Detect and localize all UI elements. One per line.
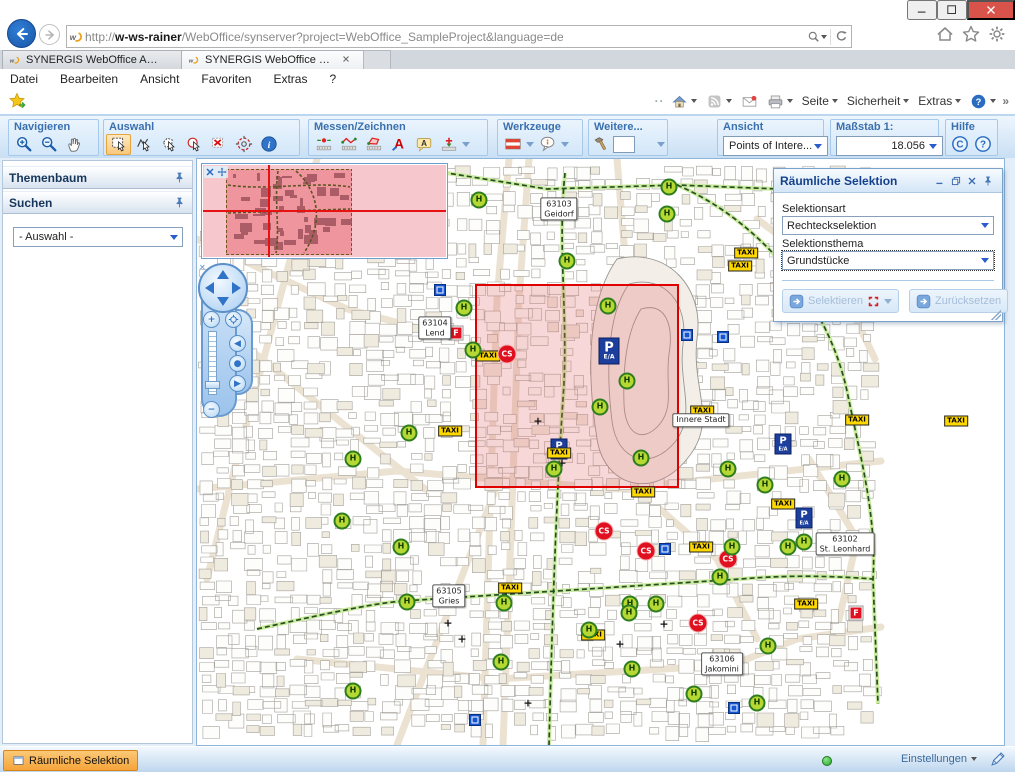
hydrant-marker: H: [661, 179, 678, 196]
dropdown-value: Points of Intere...: [729, 140, 814, 152]
add-favorite-icon[interactable]: [8, 91, 28, 111]
panel-close-button[interactable]: [964, 173, 980, 189]
refresh-icon[interactable]: [834, 29, 849, 44]
nav-current-extent-button[interactable]: ●: [229, 355, 246, 372]
measure-line-icon: [340, 135, 358, 153]
select-line-icon: [135, 135, 153, 153]
info-square-marker: [469, 714, 481, 726]
menu-extras[interactable]: Extras: [273, 72, 307, 86]
measure-area-button[interactable]: [361, 134, 386, 155]
selection-rectangle-icon: [867, 295, 880, 308]
parking-marker: PE/A: [775, 434, 792, 455]
group-title: Werkzeuge: [503, 121, 561, 133]
church-cross-marker: +: [457, 633, 466, 646]
hydrant-marker: H: [749, 695, 766, 712]
taxi-stand-marker: TAXI: [794, 599, 818, 610]
toolbar-group-navigieren: Navigieren: [8, 119, 99, 156]
favorites-star-icon[interactable]: [961, 24, 981, 44]
carsharing-marker: CS: [637, 542, 656, 561]
selektieren-label: Selektieren: [808, 295, 863, 307]
hydrant-marker: H: [780, 539, 797, 556]
minimize-icon: [915, 3, 929, 17]
select-circle-icon: [185, 135, 203, 153]
menu-datei[interactable]: Datei: [10, 72, 38, 86]
browser-tab-1[interactable]: wSYNERGIS WebOffice Administ...: [2, 50, 194, 69]
carsharing-marker: CS: [498, 345, 517, 364]
svg-text:i: i: [267, 140, 270, 151]
panel-minimize-button[interactable]: [932, 173, 948, 189]
help-circle-icon: ?: [974, 135, 992, 153]
overview-thumbnail: [226, 169, 352, 255]
district-label: 63105Gries: [432, 584, 465, 607]
taxi-stand-marker: TAXI: [845, 415, 869, 426]
hydrant-marker: H: [592, 399, 609, 416]
selektieren-button[interactable]: Selektieren: [782, 289, 899, 313]
window-titlebar[interactable]: [0, 0, 1015, 22]
pan-west-icon[interactable]: [205, 282, 214, 294]
nav-zoom-in-button[interactable]: +: [203, 311, 220, 328]
drag-handle[interactable]: ··: [655, 94, 665, 108]
hydrant-marker: H: [581, 622, 598, 639]
help-circle-button[interactable]: ?: [972, 134, 996, 155]
draw-symbol-icon: [440, 135, 458, 153]
select-clear-icon: [210, 135, 228, 153]
browser-tab-2[interactable]: wSYNERGIS WebOffice WebO...: [181, 50, 375, 69]
austria-flag-button[interactable]: [500, 134, 525, 155]
cmd-seite[interactable]: Seite: [799, 93, 841, 109]
weboffice-toolbar: NavigierenAuswahliMessen/ZeichnenAAWerkz…: [0, 114, 1015, 158]
chevron-down-icon[interactable]: [461, 142, 471, 147]
hydrant-marker: H: [724, 539, 741, 556]
back-button[interactable]: [7, 19, 36, 48]
hydrant-marker: H: [559, 253, 576, 270]
menu-favoriten[interactable]: Favoriten: [201, 72, 251, 86]
hydrant-marker: H: [834, 471, 851, 488]
svg-text:A: A: [421, 139, 427, 148]
group-title: Messen/Zeichnen: [314, 121, 406, 133]
hydrant-marker: H: [621, 605, 638, 622]
taxi-stand-marker: TAXI: [728, 261, 752, 272]
cmd-sicherheit[interactable]: Sicherheit: [844, 93, 912, 109]
settings-button[interactable]: Einstellungen: [895, 752, 983, 766]
menu-bearbeiten[interactable]: Bearbeiten: [60, 72, 118, 86]
taxi-stand-marker: TAXI: [631, 487, 655, 498]
tab-label: SYNERGIS WebOffice Administ...: [26, 54, 158, 66]
group-title: Ansicht: [723, 121, 763, 133]
draw-label-icon: A: [415, 135, 433, 153]
toolbar-group-messenzeichnen: Messen/ZeichnenAA: [308, 119, 488, 156]
pan-north-icon[interactable]: [217, 270, 229, 279]
toolbar-group-hilfe: HilfeC?: [945, 119, 998, 156]
overview-move-icon[interactable]: [217, 167, 227, 177]
sidebar-panel-suchen[interactable]: Suchen: [3, 191, 192, 214]
weboffice-favicon: w: [69, 29, 85, 45]
zoom-in-icon: [15, 135, 33, 153]
carsharing-marker: CS: [689, 614, 708, 633]
spatial-selection-panel: Räumliche Selektion Selektionsart Rechte…: [773, 168, 1003, 322]
hammer-icon: [592, 135, 610, 153]
district-label: 63104Lend: [418, 316, 451, 339]
window-minimize-button[interactable]: [907, 0, 937, 20]
info-square-marker: [659, 543, 671, 555]
toolbar-group-mastab: Maßstab 1:18.056: [830, 119, 939, 156]
overview-close-icon[interactable]: [205, 167, 215, 177]
chevron-down-icon: [990, 99, 996, 103]
draw-text-button[interactable]: A: [386, 134, 411, 155]
browser-window: w http://w-ws-rainer/WebOffice/synserver…: [0, 0, 1015, 772]
gear-icon[interactable]: [987, 24, 1007, 44]
hydrant-marker: H: [345, 683, 362, 700]
taxi-stand-marker: TAXI: [498, 583, 522, 594]
fire-marker: F: [450, 327, 463, 340]
taxi-stand-marker: TAXI: [944, 416, 968, 427]
select-buffer-button[interactable]: [231, 134, 256, 155]
map-navigation-widget: ✕ + ◀ ● ▶ −: [199, 263, 257, 425]
cmd-feeds[interactable]: [703, 92, 735, 111]
select-polygon-button[interactable]: [156, 134, 181, 155]
sidebar-panel-themenbaum[interactable]: Themenbaum: [3, 166, 192, 189]
info-square-marker: [681, 329, 693, 341]
hydrant-marker: H: [345, 451, 362, 468]
cmd-print[interactable]: [764, 92, 796, 111]
hydrant-marker: H: [546, 461, 563, 478]
panel-title: Räumliche Selektion: [780, 174, 932, 188]
group-title: Weitere...: [594, 121, 643, 133]
select-rectangle-icon: [110, 135, 128, 153]
sidebar-panel-label: Suchen: [9, 196, 173, 210]
pan-south-icon[interactable]: [217, 297, 229, 306]
status-bar: Räumliche Selektion Einstellungen: [0, 746, 1015, 772]
cmd-extras[interactable]: Extras: [915, 93, 964, 109]
church-cross-marker: +: [659, 618, 668, 631]
cmd-label: Sicherheit: [847, 94, 900, 108]
settings-label: Einstellungen: [901, 753, 967, 765]
chevron-down-icon: [814, 144, 822, 149]
arrow-right-icon: [789, 294, 804, 309]
toolbar-group-werkzeuge: Werkzeuge: [497, 119, 583, 156]
active-tool-tab[interactable]: Räumliche Selektion: [3, 750, 138, 771]
url-field[interactable]: w http://w-ws-rainer/WebOffice/synserver…: [66, 25, 852, 48]
hydrant-marker: H: [760, 638, 777, 655]
church-cross-marker: +: [523, 697, 532, 710]
measure-line-button[interactable]: [336, 134, 361, 155]
selektionsthema-dropdown[interactable]: Grundstücke: [782, 251, 994, 270]
zuruecksetzen-label: Zurücksetzen: [935, 295, 1001, 307]
fire-marker: F: [850, 607, 863, 620]
sidebar: - Auswahl - ThemenbaumSuchen: [2, 160, 193, 744]
overflow-chevron[interactable]: »: [1002, 94, 1009, 108]
chevron-down-icon: [971, 757, 977, 761]
chevron-down-icon: [955, 99, 961, 103]
menu-help[interactable]: ?: [329, 72, 336, 86]
weboffice-logo-icon: w: [9, 54, 22, 67]
selektionsart-value: Rechteckselektion: [787, 220, 981, 232]
copyright-button[interactable]: C: [948, 134, 972, 155]
hydrant-marker: H: [465, 342, 482, 359]
copyright-icon: C: [951, 135, 969, 153]
pin-icon: [173, 171, 186, 184]
group-title: Maßstab 1:: [836, 121, 893, 133]
hydrant-marker: H: [393, 539, 410, 556]
group-title: Auswahl: [109, 121, 154, 133]
weboffice-logo-icon: w: [188, 54, 201, 67]
group-title: Hilfe: [951, 121, 975, 133]
window-maximize-button[interactable]: [937, 0, 967, 20]
selektionsart-dropdown[interactable]: Rechteckselektion: [782, 216, 994, 235]
draw-text-icon: A: [390, 135, 408, 153]
divider: [782, 280, 994, 281]
dropdown-value: 18.056: [842, 140, 929, 152]
view-dropdown[interactable]: Points of Intere...: [723, 136, 828, 156]
maximize-icon: [945, 3, 959, 17]
selektionsthema-value: Grundstücke: [787, 255, 981, 267]
back-arrow-icon: [13, 25, 31, 43]
svg-text:?: ?: [980, 140, 986, 151]
toolbar-group-auswahl: Auswahli: [103, 119, 300, 156]
svg-text:?: ?: [976, 96, 982, 106]
hydrant-marker: H: [334, 513, 351, 530]
church-cross-marker: +: [533, 415, 542, 428]
chevron-down-icon: [981, 223, 989, 228]
edit-pencil-icon[interactable]: [989, 750, 1007, 768]
status-indicator-dot: [822, 756, 832, 766]
svg-text:A: A: [394, 137, 404, 152]
chevron-down-icon: [981, 258, 989, 263]
hydrant-marker: H: [399, 594, 416, 611]
district-label: 63103Geidorf: [540, 197, 577, 220]
select-clear-button[interactable]: [206, 134, 231, 155]
search-theme-value: - Auswahl -: [19, 231, 170, 243]
hammer-button[interactable]: [591, 134, 611, 155]
taxi-stand-marker: TAXI: [438, 426, 462, 437]
selektionsart-label: Selektionsart: [782, 203, 994, 215]
hydrant-marker: H: [456, 300, 473, 317]
search-options-caret[interactable]: [821, 35, 827, 39]
new-tab-stub[interactable]: [363, 50, 391, 70]
hydrant-marker: H: [712, 569, 729, 586]
taxi-stand-marker: TAXI: [689, 542, 713, 553]
nav-next-extent-button[interactable]: ▶: [229, 375, 246, 392]
select-rectangle-button[interactable]: [106, 134, 131, 155]
arrow-right-icon: [916, 294, 931, 309]
toolbar-group-weitere: Weitere...: [588, 119, 668, 156]
draw-label-button[interactable]: A: [411, 134, 436, 155]
cmd-read-mail[interactable]: [738, 92, 761, 111]
maptip-icon: [539, 135, 557, 153]
church-cross-marker: +: [443, 617, 452, 630]
nav-previous-extent-button[interactable]: ◀: [229, 335, 246, 352]
pan-compass[interactable]: [198, 263, 248, 313]
identify-icon: i: [260, 135, 278, 153]
forward-button[interactable]: [39, 24, 60, 45]
help-badge-icon: ?: [970, 93, 987, 110]
close-icon: [984, 3, 998, 17]
chevron-down-icon: [832, 99, 838, 103]
pan-east-icon[interactable]: [232, 282, 241, 294]
home-icon[interactable]: [935, 24, 955, 44]
hydrant-marker: H: [796, 534, 813, 551]
austria-flag-icon: [504, 135, 522, 153]
identify-button[interactable]: i: [256, 134, 281, 155]
forward-arrow-icon: [43, 28, 57, 42]
info-square-marker: [728, 702, 740, 714]
search-icon[interactable]: [806, 29, 821, 44]
church-cross-marker: +: [615, 638, 624, 651]
divider: [830, 29, 831, 45]
chevron-down-icon: [929, 144, 937, 149]
svg-text:w: w: [10, 58, 15, 64]
hydrant-marker: H: [471, 192, 488, 209]
hydrant-marker: H: [401, 425, 418, 442]
parking-marker: PE/A: [796, 508, 813, 529]
pan-icon: [65, 135, 83, 153]
taxi-stand-marker: TAXI: [734, 248, 758, 259]
hydrant-marker: H: [624, 661, 641, 678]
district-label: 63106Jakomini: [701, 652, 743, 675]
zoom-out-button[interactable]: [36, 134, 61, 155]
window-tab-icon: [12, 754, 25, 767]
chevron-down-icon: [170, 235, 178, 240]
zoom-slider-handle[interactable]: [205, 381, 220, 389]
draw-symbol-button[interactable]: [436, 134, 461, 155]
chevron-down-icon[interactable]: [525, 142, 535, 147]
hydrant-marker: H: [619, 373, 636, 390]
tool-text-input[interactable]: [613, 136, 635, 153]
select-line-button[interactable]: [131, 134, 156, 155]
more-tools: [638, 135, 656, 153]
select-circle-button[interactable]: [181, 134, 206, 155]
overview-map[interactable]: [201, 163, 448, 259]
hydrant-marker: H: [493, 654, 510, 671]
hydrant-marker: H: [720, 461, 737, 478]
chevron-down-icon[interactable]: [560, 142, 570, 147]
window-close-button[interactable]: [967, 0, 1015, 20]
chevron-down-icon: [726, 99, 732, 103]
hydrant-marker: H: [659, 206, 676, 223]
measure-area-icon: [365, 135, 383, 153]
home-icon: [671, 93, 688, 110]
maptip-button[interactable]: [535, 134, 560, 155]
measure-point-icon: [315, 135, 333, 153]
hydrant-marker: H: [648, 596, 665, 613]
menu-bar: DateiBearbeitenAnsichtFavoritenExtras?: [0, 69, 1015, 88]
group-title: Navigieren: [14, 121, 70, 133]
pan-button[interactable]: [61, 134, 86, 155]
tab-strip: wSYNERGIS WebOffice Administ...wSYNERGIS…: [0, 50, 1015, 70]
taxi-stand-marker: TAXI: [547, 448, 571, 459]
hydrant-marker: H: [686, 686, 703, 703]
chevron-down-icon: [903, 99, 909, 103]
search-theme-dropdown[interactable]: - Auswahl -: [13, 227, 183, 247]
hydrant-marker: H: [757, 477, 774, 494]
sidebar-panel-label: Themenbaum: [9, 171, 173, 185]
zoom-in-button[interactable]: [11, 134, 36, 155]
cmd-help-badge[interactable]: ?: [967, 92, 999, 111]
taxi-stand-marker: TAXI: [771, 499, 795, 510]
hydrant-marker: H: [496, 595, 513, 612]
chevron-down-icon: [787, 99, 793, 103]
select-buffer-icon: [235, 135, 253, 153]
hydrant-marker: H: [600, 298, 617, 315]
overview-crosshair-h: [203, 210, 446, 212]
feeds-icon: [706, 93, 723, 110]
hydrant-marker: H: [633, 450, 650, 467]
info-square-marker: [434, 284, 446, 296]
zoom-out-icon: [40, 135, 58, 153]
more-tools-button[interactable]: [637, 134, 657, 155]
district-label: 63102St. Leonhard: [816, 532, 875, 555]
selektionsthema-label: Selektionsthema: [782, 238, 994, 250]
tab-close-icon[interactable]: [341, 54, 351, 67]
cmd-home[interactable]: [668, 92, 700, 111]
panel-resize-grip[interactable]: [991, 310, 1001, 320]
toolbar-group-ansicht: AnsichtPoints of Intere...: [717, 119, 824, 156]
chevron-down-icon: [691, 99, 697, 103]
menu-ansicht[interactable]: Ansicht: [140, 72, 179, 86]
url-text[interactable]: http://w-ws-rainer/WebOffice/synserver?p…: [85, 30, 806, 44]
carsharing-marker: CS: [595, 522, 614, 541]
command-bar: ··SeiteSicherheitExtras?»: [655, 88, 1009, 114]
print-icon: [767, 93, 784, 110]
chevron-down-icon: [884, 299, 892, 304]
parking-marker: PE/A: [599, 338, 620, 365]
panel-header[interactable]: Räumliche Selektion: [774, 169, 1002, 193]
panel-pin-button[interactable]: [980, 173, 996, 189]
active-tool-label: Räumliche Selektion: [29, 755, 129, 767]
measure-point-button[interactable]: [311, 134, 336, 155]
nav-full-extent-button[interactable]: [225, 311, 242, 328]
nav-zoom-out-button[interactable]: −: [203, 401, 220, 418]
info-square-marker: [717, 331, 729, 343]
pin-icon: [173, 196, 186, 209]
read-mail-icon: [741, 93, 758, 110]
cmd-label: Extras: [918, 94, 952, 108]
overview-crosshair-v: [268, 165, 270, 257]
select-polygon-icon: [160, 135, 178, 153]
panel-restore-button[interactable]: [948, 173, 964, 189]
district-label: Innere Stadt: [672, 413, 729, 427]
cmd-label: Seite: [802, 94, 829, 108]
svg-text:C: C: [956, 140, 963, 151]
scale-dropdown[interactable]: 18.056: [836, 136, 943, 156]
svg-text:w: w: [189, 58, 194, 64]
chevron-down-icon[interactable]: [657, 142, 665, 147]
tab-label: SYNERGIS WebOffice WebO...: [205, 54, 337, 66]
